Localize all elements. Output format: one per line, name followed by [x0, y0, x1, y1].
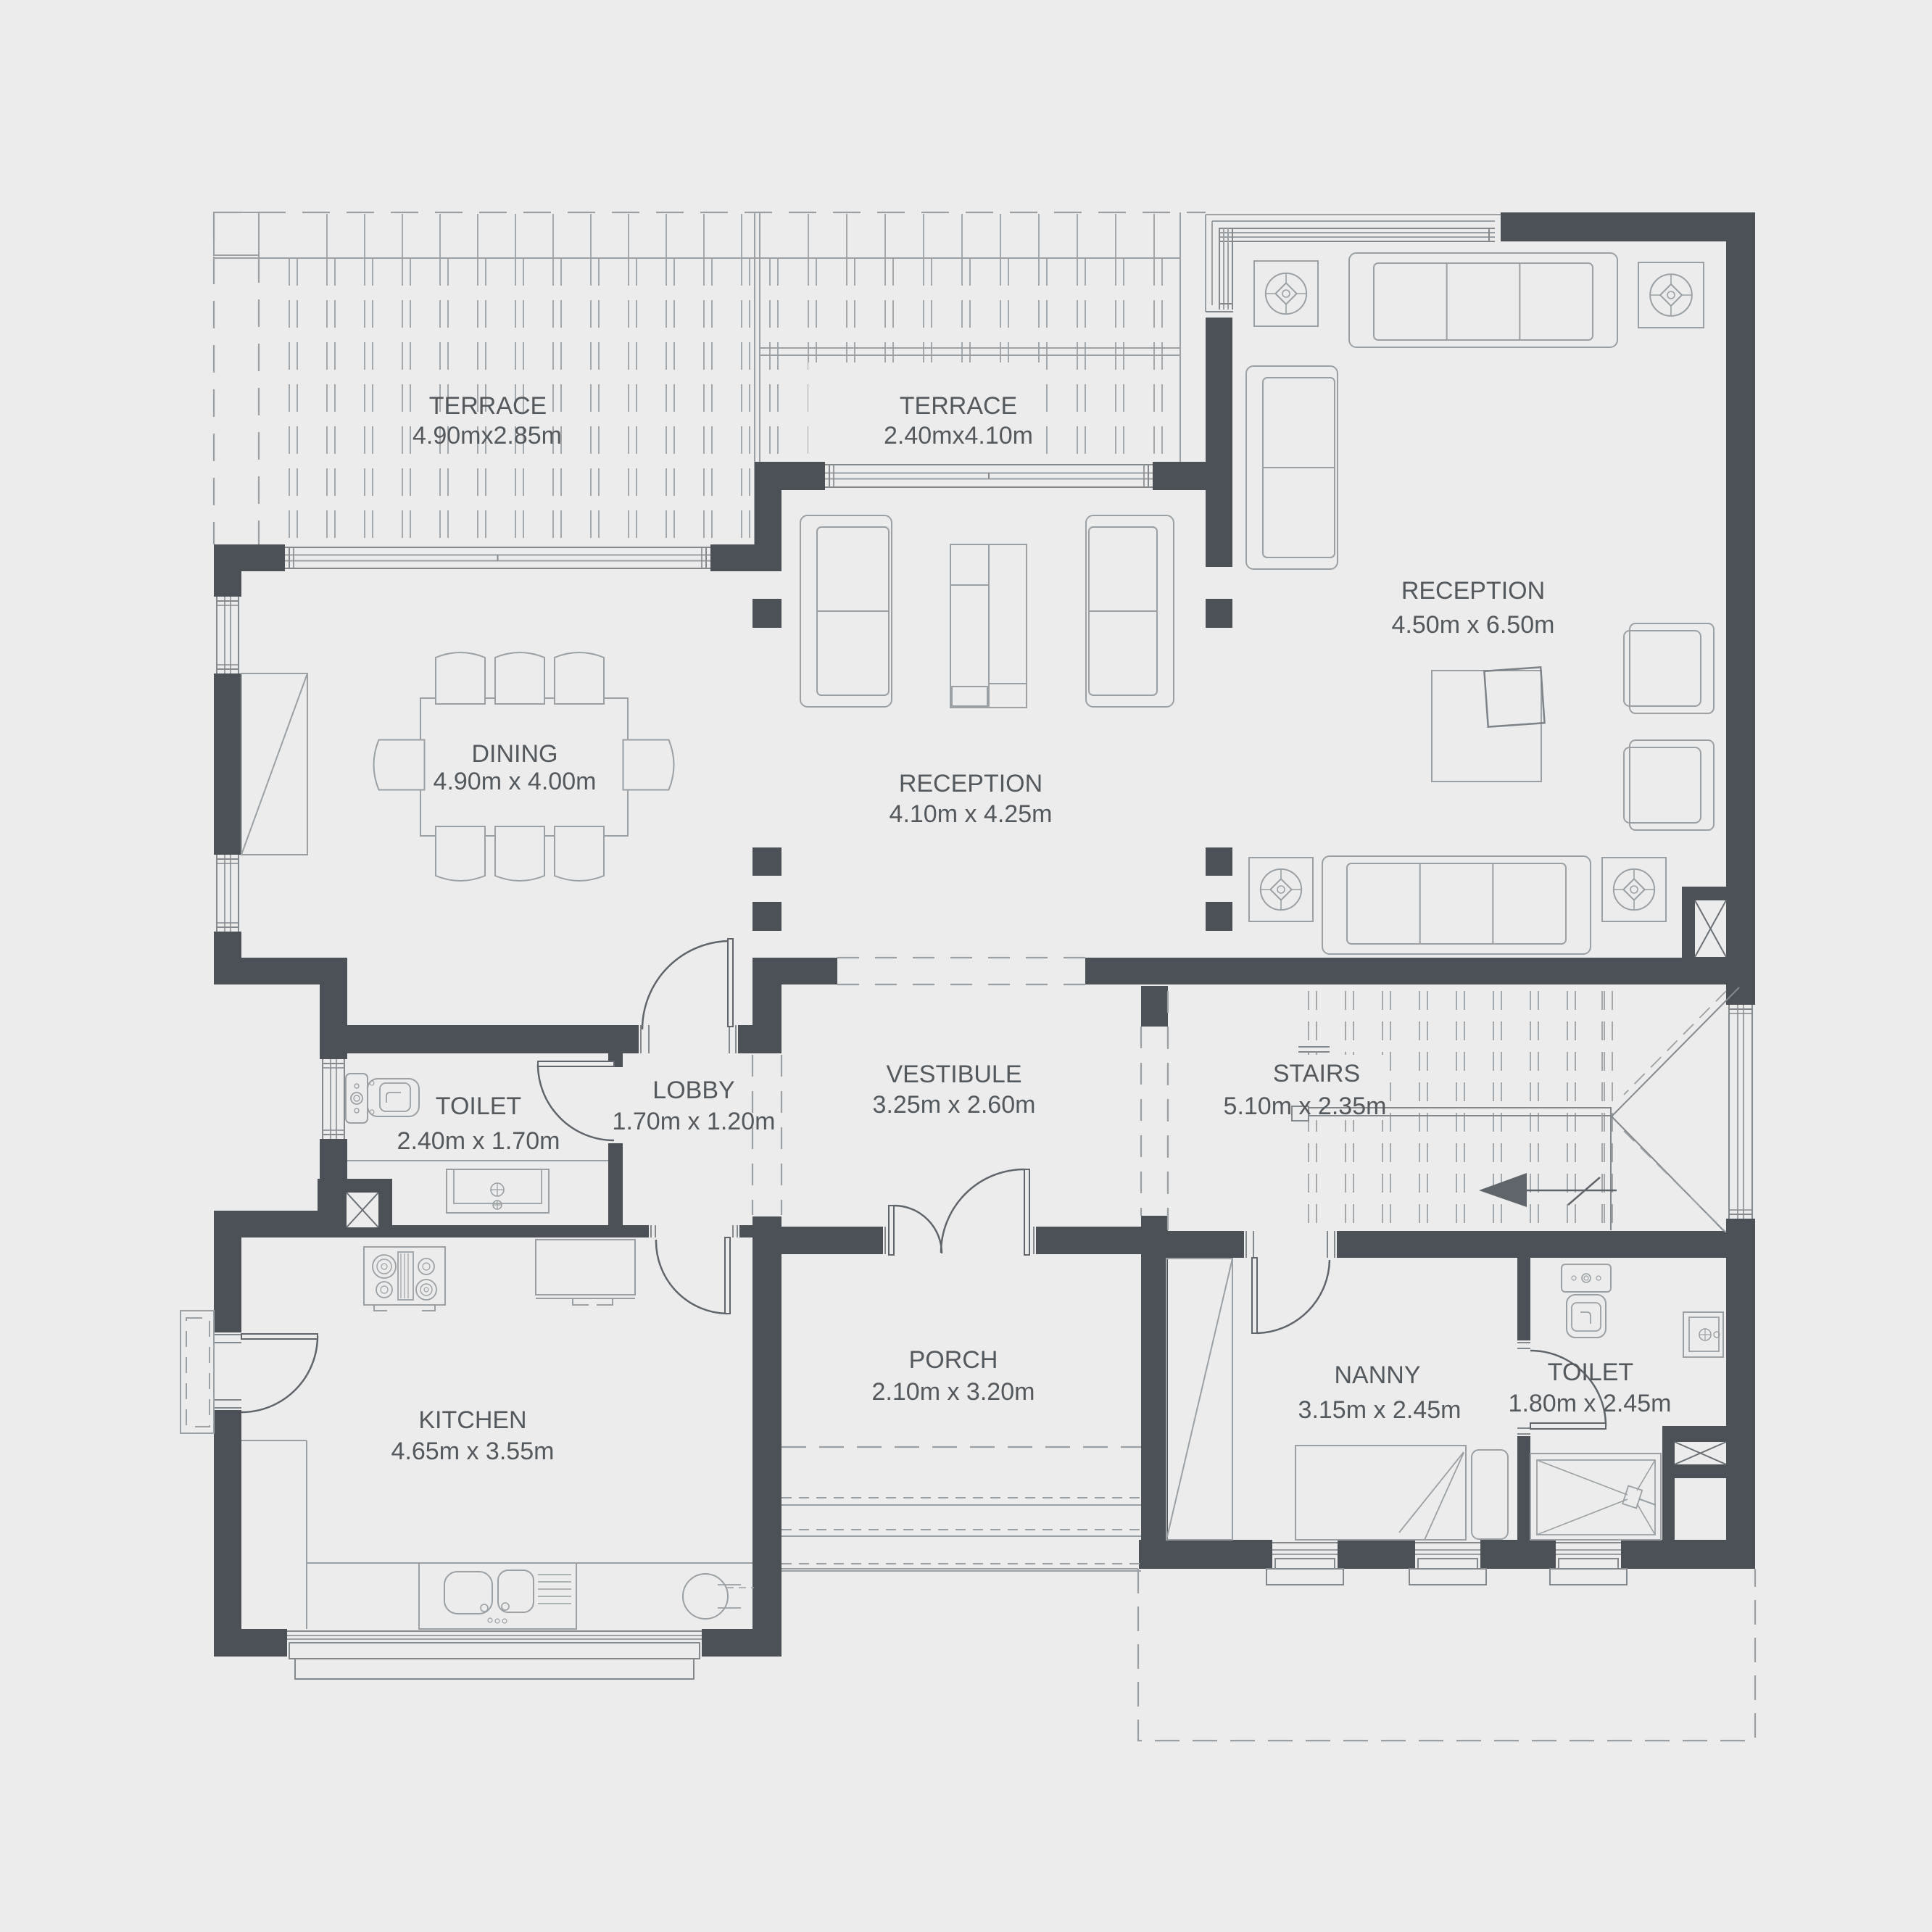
svg-text:4.90m x 4.00m: 4.90m x 4.00m [434, 768, 597, 795]
svg-text:DINING: DINING [472, 740, 558, 768]
svg-text:2.40mx4.10m: 2.40mx4.10m [884, 422, 1033, 449]
svg-text:1.80m x 2.45m: 1.80m x 2.45m [1509, 1390, 1672, 1417]
svg-text:RECEPTION: RECEPTION [899, 770, 1042, 797]
svg-text:2.40m x 1.70m: 2.40m x 1.70m [397, 1127, 560, 1155]
svg-text:KITCHEN: KITCHEN [418, 1406, 526, 1434]
svg-text:4.65m x 3.55m: 4.65m x 3.55m [391, 1438, 555, 1465]
svg-text:2.10m x 3.20m: 2.10m x 3.20m [872, 1378, 1035, 1406]
svg-text:4.90mx2.85m: 4.90mx2.85m [412, 422, 562, 449]
svg-text:RECEPTION: RECEPTION [1401, 577, 1545, 605]
svg-text:PORCH: PORCH [909, 1346, 998, 1374]
svg-text:VESTIBULE: VESTIBULE [886, 1061, 1021, 1088]
svg-text:STAIRS: STAIRS [1273, 1060, 1360, 1087]
svg-text:3.15m x 2.45m: 3.15m x 2.45m [1298, 1396, 1462, 1424]
svg-text:1.70m x 1.20m: 1.70m x 1.20m [613, 1108, 776, 1135]
svg-text:4.10m x 4.25m: 4.10m x 4.25m [890, 800, 1053, 828]
svg-text:LOBBY: LOBBY [652, 1077, 734, 1104]
svg-text:3.25m x 2.60m: 3.25m x 2.60m [873, 1091, 1036, 1119]
svg-text:TERRACE: TERRACE [429, 392, 547, 420]
svg-text:5.10m x 2.35m: 5.10m x 2.35m [1224, 1093, 1387, 1120]
svg-text:TOILET: TOILET [1548, 1359, 1633, 1386]
svg-text:TOILET: TOILET [436, 1093, 521, 1120]
svg-text:TERRACE: TERRACE [900, 392, 1017, 420]
svg-text:NANNY: NANNY [1334, 1361, 1420, 1389]
svg-text:4.50m x 6.50m: 4.50m x 6.50m [1392, 611, 1555, 639]
